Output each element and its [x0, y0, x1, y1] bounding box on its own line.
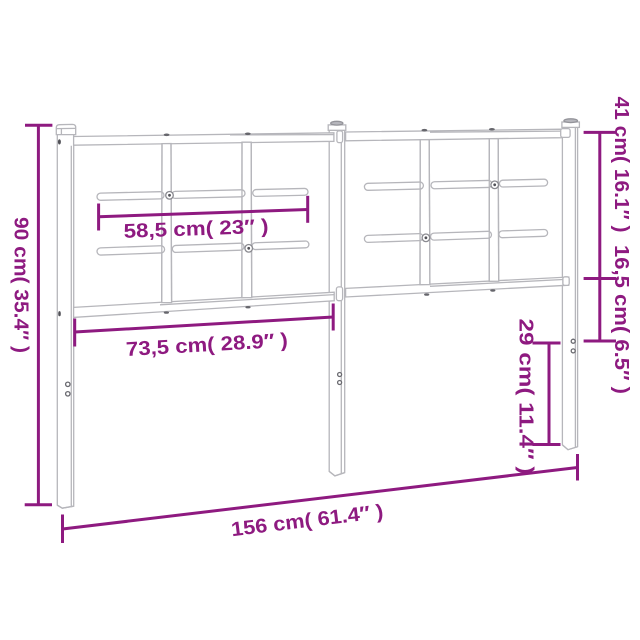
svg-text:90 cm( 35.4″ ): 90 cm( 35.4″ ) [9, 217, 31, 353]
svg-text:73,5 cm( 28.9″ ): 73,5 cm( 28.9″ ) [125, 330, 288, 361]
svg-text:16,5 cm( 6.5″ ): 16,5 cm( 6.5″ ) [610, 245, 632, 394]
svg-text:29 cm( 11.4″ ): 29 cm( 11.4″ ) [514, 319, 536, 475]
svg-text:41 cm( 16.1″ ): 41 cm( 16.1″ ) [610, 97, 632, 233]
